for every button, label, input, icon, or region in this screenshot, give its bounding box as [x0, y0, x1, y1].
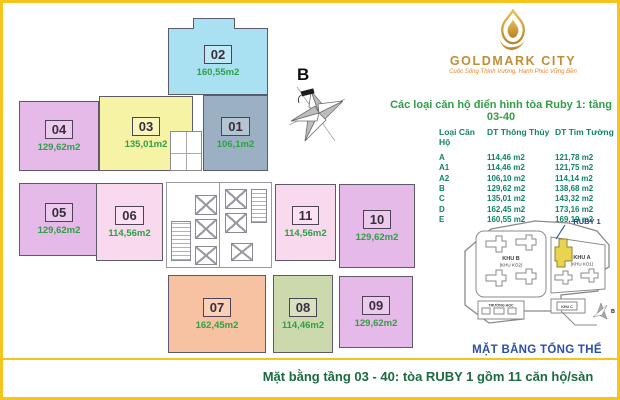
unit-area: 135,01m2	[125, 139, 168, 150]
unit-number: 04	[45, 120, 73, 139]
unit-04: 04 129,62m2	[19, 101, 99, 171]
dt-tim-tuong-value: 138,68 m2	[555, 184, 620, 194]
unit-area: 129,62m2	[355, 318, 398, 329]
core-wall	[219, 183, 220, 267]
unit-number: 03	[132, 117, 160, 136]
compass-north-label: B	[297, 65, 347, 85]
brand-block: GOLDMARK CITY Cuộc Sống Thịnh Vượng, Hạn…	[423, 9, 603, 75]
elevator-icon	[225, 213, 247, 233]
khu-a-label: KHU A	[573, 255, 590, 261]
unit-01: 01 106,1m2	[203, 95, 268, 171]
elevator-icon	[195, 195, 217, 215]
stairs-icon	[251, 189, 267, 223]
brand-name: GOLDMARK CITY	[423, 54, 603, 68]
school-label: TRƯỜNG HỌC	[488, 303, 514, 308]
dt-thong-thuy-value: 106,10 m2	[487, 174, 555, 184]
unit-number: 05	[45, 203, 73, 222]
khu-a-sub-label: (KHU KO1)	[571, 262, 594, 267]
bathroom-detail	[170, 131, 202, 171]
unit-area: 114,56m2	[284, 228, 326, 239]
goldmark-flame-logo-icon	[490, 9, 536, 53]
unit-type-code: A2	[439, 174, 487, 184]
unit-02: 02 160,55m2	[168, 28, 268, 95]
col-header-thong-thuy: DT Thông Thủy	[487, 127, 555, 148]
dt-thong-thuy-value: 114,46 m2	[487, 153, 555, 163]
unit-area: 129,62m2	[38, 225, 81, 236]
sitemap-title: MẶT BẰNG TỔNG THỂ	[455, 344, 619, 356]
elevator-icon	[225, 189, 247, 209]
sitemap-block: KHU B (KHU KO2) KHU A (KHU KO1) TRƯỜNG H…	[455, 213, 619, 356]
khu-c-label: KHU C	[561, 305, 573, 309]
dt-tim-tuong-value: 121,75 m2	[555, 163, 620, 173]
school-buildings	[482, 308, 516, 314]
unit-09: 09 129,62m2	[339, 276, 413, 348]
unit-type-code: A	[439, 153, 487, 163]
unit-06: 06 114,56m2	[96, 183, 163, 261]
unit-number: 02	[204, 45, 232, 64]
dt-thong-thuy-value: 135,01 m2	[487, 194, 555, 204]
unit-area: 160,55m2	[197, 67, 240, 78]
unit-type-code: B	[439, 184, 487, 194]
unit-area: 114,46m2	[282, 320, 324, 331]
brand-tagline: Cuộc Sống Thịnh Vượng, Hạnh Phúc Vững Bề…	[423, 69, 603, 75]
compass-rose-icon	[289, 85, 345, 143]
area-table-row: A1 114,46 m2 121,75 m2	[439, 163, 620, 173]
sitemap-compass-label: B	[611, 309, 615, 315]
unit-number: 07	[203, 298, 231, 317]
area-table-row: C 135,01 m2 143,32 m2	[439, 194, 620, 204]
khu-b-label: KHU B	[502, 256, 519, 262]
unit-area: 129,62m2	[38, 142, 81, 153]
unit-11: 11 114,56m2	[275, 184, 336, 261]
area-table-row: A2 106,10 m2 114,14 m2	[439, 174, 620, 184]
unit-number: 08	[289, 298, 317, 317]
unit-10: 10 129,62m2	[339, 184, 415, 268]
footer-caption: Mặt bằng tầng 03 - 40: tòa RUBY 1 gồm 11…	[233, 369, 620, 384]
area-table-row: B 129,62 m2 138,68 m2	[439, 184, 620, 194]
unit-type-code: A1	[439, 163, 487, 173]
unit-number: 01	[221, 117, 249, 136]
sitemap-compass-icon: B	[593, 303, 615, 319]
area-table: Loại Căn Hộ DT Thông Thủy DT Tim Tường A…	[439, 127, 620, 226]
masterplan-map: KHU B (KHU KO2) KHU A (KHU KO1) TRƯỜNG H…	[455, 213, 619, 337]
unit-area: 129,62m2	[356, 232, 399, 243]
unit-type-code: C	[439, 194, 487, 204]
unit-number: 09	[362, 296, 390, 315]
unit-area: 114,56m2	[108, 228, 150, 239]
unit-07: 07 162,45m2	[168, 275, 266, 353]
col-header-tim-tuong: DT Tim Tường	[555, 127, 620, 148]
section-title: Các loại căn hộ điển hình tòa Ruby 1: tầ…	[381, 99, 620, 123]
unit-number: 11	[292, 206, 320, 225]
khu-b-sub-label: (KHU KO2)	[500, 263, 523, 268]
stairs-icon	[171, 221, 191, 261]
unit-number: 10	[363, 210, 391, 229]
dt-tim-tuong-value: 114,14 m2	[555, 174, 620, 184]
plan-compass: B	[289, 65, 347, 148]
elevator-icon	[195, 219, 217, 239]
unit-02-tab	[193, 18, 235, 29]
ruby1-label: RUBY 1	[573, 217, 600, 226]
area-table-row: A 114,46 m2 121,78 m2	[439, 153, 620, 163]
unit-area: 106,1m2	[217, 139, 255, 150]
col-header-loai: Loại Căn Hộ	[439, 127, 487, 148]
dt-tim-tuong-value: 121,78 m2	[555, 153, 620, 163]
dt-thong-thuy-value: 114,46 m2	[487, 163, 555, 173]
dt-tim-tuong-value: 143,32 m2	[555, 194, 620, 204]
area-table-header: Loại Căn Hộ DT Thông Thủy DT Tim Tường	[439, 127, 620, 148]
elevator-icon	[231, 243, 253, 261]
unit-number: 06	[115, 206, 143, 225]
dt-thong-thuy-value: 129,62 m2	[487, 184, 555, 194]
unit-08: 08 114,46m2	[273, 275, 333, 353]
unit-area: 162,45m2	[196, 320, 239, 331]
footer-bar: Mặt bằng tầng 03 - 40: tòa RUBY 1 gồm 11…	[3, 358, 617, 397]
elevator-icon	[195, 246, 217, 265]
unit-05: 05 129,62m2	[19, 183, 99, 256]
brochure-page: 01 106,1m2 02 160,55m2 03 135,01m2 04 12…	[0, 0, 620, 400]
